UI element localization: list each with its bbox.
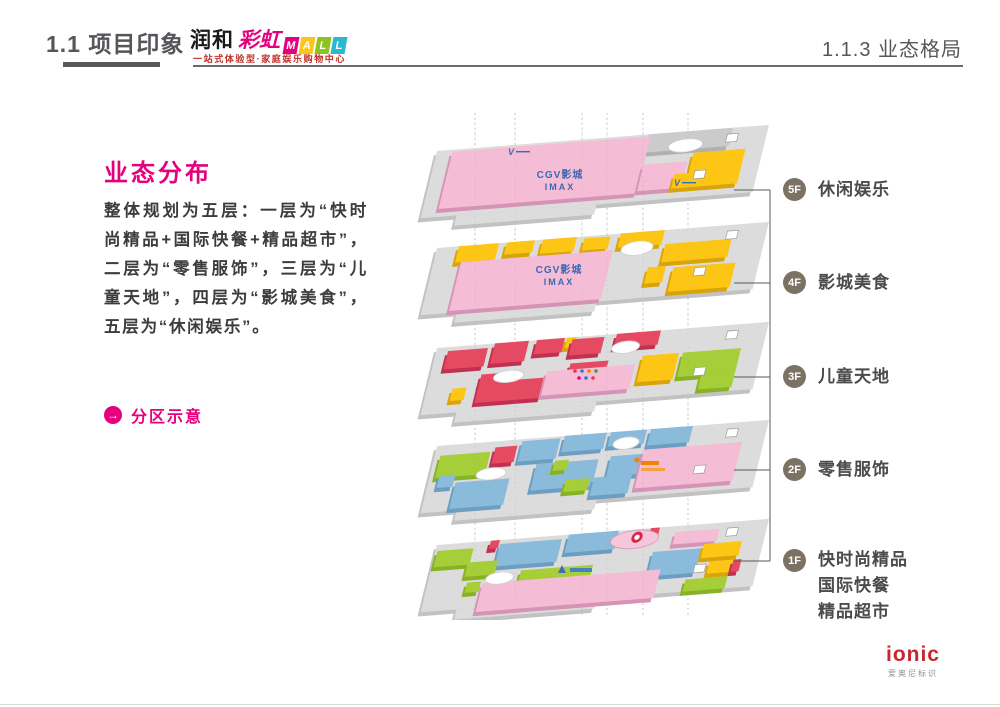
footer-brand-subtitle: 爱奥尼标识 bbox=[882, 668, 944, 679]
unit-block-blue bbox=[590, 475, 632, 496]
unit-block-red bbox=[444, 348, 488, 370]
floor-plan-5f bbox=[415, 125, 769, 233]
floor-name-1f-line3: 精品超市 bbox=[818, 599, 908, 625]
floor-name-2f: 零售服饰 bbox=[818, 458, 890, 481]
unit-block-blue bbox=[518, 438, 561, 461]
kids-zone-logo-dot bbox=[580, 369, 584, 373]
floor-name-1f-line2: 国际快餐 bbox=[818, 573, 908, 599]
elevator-icon bbox=[726, 133, 739, 142]
unit-block-green bbox=[465, 582, 481, 593]
elevator-icon bbox=[726, 330, 739, 339]
kids-zone-logo-dot bbox=[573, 369, 577, 373]
kids-zone-logo-dot bbox=[594, 369, 598, 373]
floor-badge-5f: 5F bbox=[783, 178, 806, 201]
footer-brand-name: ionic bbox=[882, 643, 944, 667]
zoning-link-label: 分区示意 bbox=[131, 403, 203, 427]
stairs-icon bbox=[693, 170, 706, 179]
unit-block-yellow bbox=[540, 237, 577, 254]
brand-logo-text-1: 润和 bbox=[190, 24, 234, 54]
cinema-brand-text: CGV影城 bbox=[536, 263, 583, 276]
unit-block-red bbox=[492, 446, 518, 464]
kids-zone-logo-dot bbox=[584, 376, 588, 380]
v-brand-mark: V bbox=[508, 147, 515, 157]
unit-block-yellow bbox=[504, 240, 535, 254]
floor-name-5f: 休闲娱乐 bbox=[818, 178, 890, 201]
unit-block-blue bbox=[449, 478, 509, 509]
unit-block-yellow bbox=[685, 149, 745, 188]
unit-block-red bbox=[569, 337, 605, 356]
elevator-icon bbox=[726, 527, 739, 536]
floor-label-4f: 4F 影城美食 bbox=[783, 271, 890, 294]
stairs-icon bbox=[693, 367, 706, 376]
header-divider bbox=[193, 65, 963, 67]
v-brand-mark: V bbox=[674, 178, 681, 188]
retailer-logo-mark bbox=[635, 458, 640, 463]
arrow-circle-icon: → bbox=[104, 406, 122, 424]
floor-label-5f: 5F 休闲娱乐 bbox=[783, 178, 890, 201]
floor-badge-4f: 4F bbox=[783, 271, 806, 294]
imax-brand-text: IMAX bbox=[545, 182, 576, 192]
elevator-icon bbox=[726, 428, 739, 437]
floor-label-2f: 2F 零售服饰 bbox=[783, 458, 890, 481]
unit-block-red bbox=[534, 338, 565, 354]
floor-label-1f: 1F 快时尚精品 国际快餐 精品超市 bbox=[783, 549, 908, 625]
brand-logo-text-2: 彩虹 bbox=[238, 24, 280, 54]
stairs-icon bbox=[693, 465, 706, 474]
floor-plan-2f bbox=[415, 420, 769, 528]
unit-block-green bbox=[563, 478, 590, 492]
floor-stack-diagram: CGV影城IMAXCGV影城IMAXVV bbox=[412, 105, 792, 620]
description-paragraph: 整体规划为五层：一层为“快时尚精品+国际快餐+精品超市”，二层为“零售服饰”，三… bbox=[104, 197, 368, 342]
unit-block-blue bbox=[437, 475, 456, 488]
floor-name-1f-line1: 快时尚精品 bbox=[818, 547, 908, 573]
floor-badge-2f: 2F bbox=[783, 458, 806, 481]
slide-bottom-rule bbox=[0, 704, 1000, 705]
floor-badge-3f: 3F bbox=[783, 365, 806, 388]
floor-name-3f: 儿童天地 bbox=[818, 365, 890, 388]
section-title: 1.1 项目印象 bbox=[46, 25, 184, 59]
stairs-icon bbox=[693, 267, 706, 276]
floor-label-3f: 3F 儿童天地 bbox=[783, 365, 890, 388]
content-heading: 业态分布 bbox=[104, 153, 212, 188]
kids-zone-logo-dot bbox=[587, 369, 591, 373]
floor-plan-4f bbox=[415, 222, 769, 330]
unit-block-green bbox=[434, 548, 474, 567]
brand-tagline: 一站式体验型·家庭娱乐购物中心 bbox=[193, 52, 346, 65]
zoning-link[interactable]: → 分区示意 bbox=[104, 403, 203, 427]
page-title: 1.1.3 业态格局 bbox=[822, 33, 962, 62]
floor-plan-3f bbox=[415, 322, 769, 430]
section-title-underline bbox=[63, 62, 160, 67]
slide-canvas: 1.1 项目印象 润和 彩虹 M A L L 一站式体验型·家庭娱乐购物中心 1… bbox=[0, 0, 1000, 707]
brand-logo: 润和 彩虹 M A L L bbox=[190, 24, 346, 54]
cinema-brand-text: CGV影城 bbox=[537, 168, 584, 181]
unit-block-red bbox=[490, 341, 529, 364]
unit-block-yellow bbox=[582, 236, 611, 250]
elevator-icon bbox=[726, 230, 739, 239]
kids-zone-logo-dot bbox=[577, 376, 581, 380]
stairs-icon bbox=[693, 564, 706, 573]
unit-block-green bbox=[553, 460, 569, 471]
floor-name-4f: 影城美食 bbox=[818, 271, 890, 294]
floor-plan-1f bbox=[415, 519, 769, 620]
imax-brand-text: IMAX bbox=[544, 277, 575, 287]
unit-block-green bbox=[677, 348, 741, 377]
floor-badge-1f: 1F bbox=[783, 549, 806, 572]
kids-zone-logo-dot bbox=[591, 376, 595, 380]
footer-brand: ionic 爱奥尼标识 bbox=[882, 643, 944, 679]
floor-name-1f: 快时尚精品 国际快餐 精品超市 bbox=[818, 547, 908, 625]
